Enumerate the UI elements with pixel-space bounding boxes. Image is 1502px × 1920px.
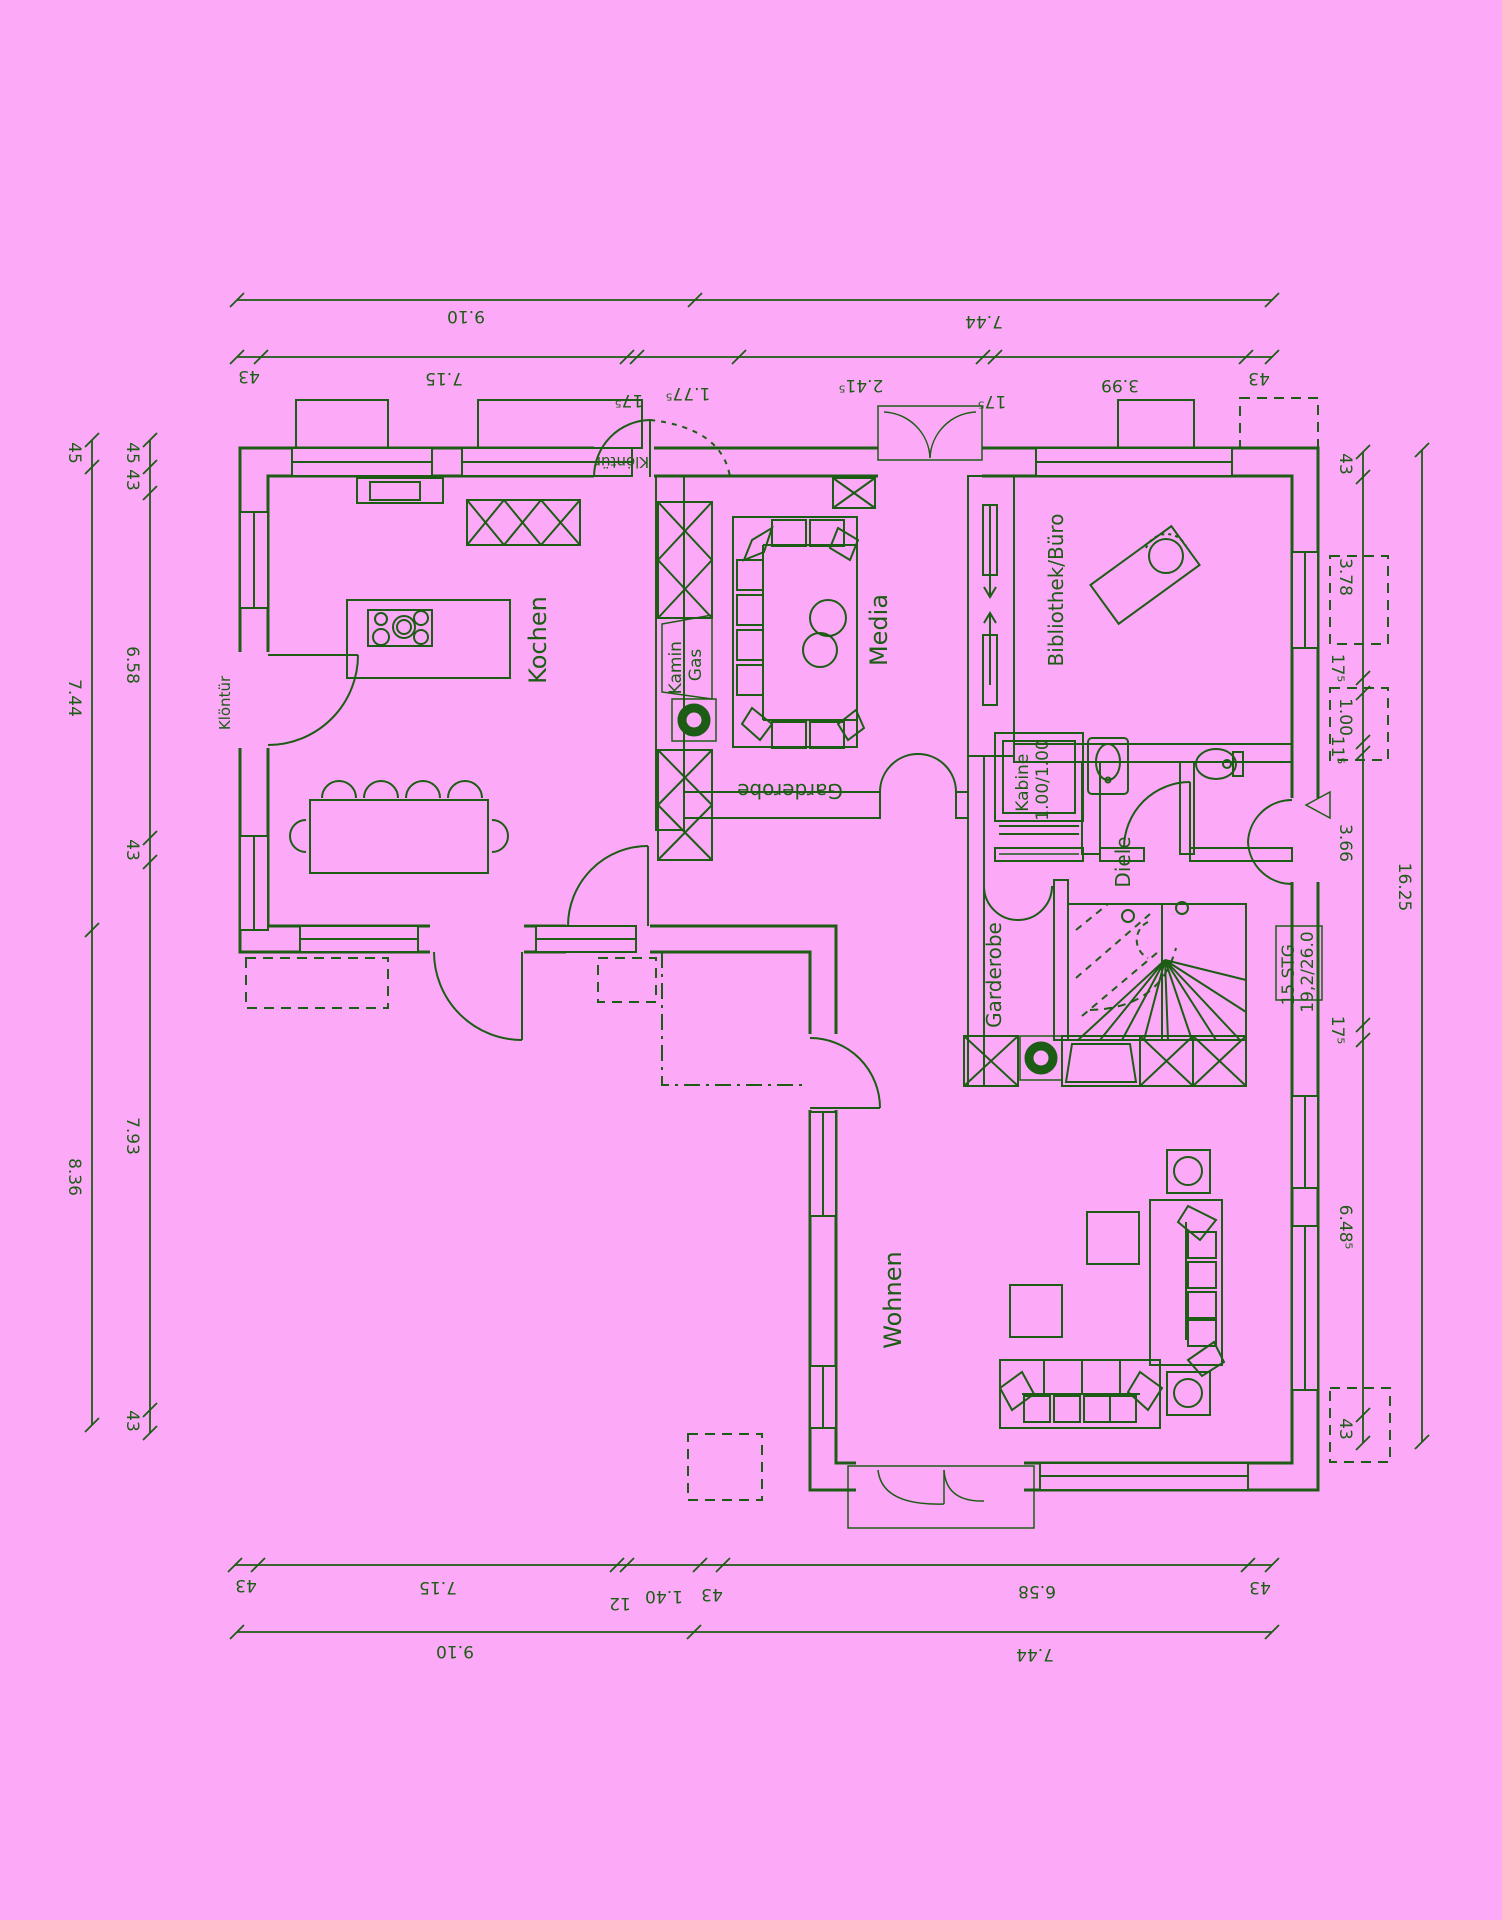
- svg-text:9.10: 9.10: [436, 1641, 474, 1661]
- kitchen-furniture: [290, 600, 510, 873]
- room-label-media: Media: [865, 594, 893, 666]
- svg-text:17⁵: 17⁵: [978, 391, 1006, 411]
- svg-text:17⁵: 17⁵: [615, 390, 643, 410]
- svg-text:43: 43: [1248, 368, 1270, 388]
- svg-text:43: 43: [1335, 1418, 1355, 1440]
- svg-text:8.36: 8.36: [64, 1158, 84, 1196]
- staircase: [1068, 902, 1246, 1040]
- svg-text:7.93: 7.93: [122, 1117, 142, 1155]
- label-kloentuer-top: Klöntür: [594, 453, 649, 471]
- svg-text:3.66: 3.66: [1335, 824, 1355, 862]
- svg-text:12: 12: [609, 1593, 631, 1613]
- fireplace-icon: [1029, 1046, 1053, 1070]
- floor-plan-drawing: 15 STG 19,2/26.0: [0, 0, 1502, 1920]
- room-label-kochen: Kochen: [524, 596, 552, 684]
- svg-text:45: 45: [122, 442, 142, 464]
- label-kabine: Kabine 1.00/1.00: [1013, 739, 1053, 820]
- svg-text:17⁵: 17⁵: [1327, 1016, 1347, 1044]
- room-label-diele: Diele: [1111, 836, 1135, 887]
- wohnen-furniture: [1000, 1150, 1224, 1428]
- svg-text:3.99: 3.99: [1101, 375, 1139, 395]
- svg-text:45: 45: [64, 442, 84, 464]
- svg-text:6.58: 6.58: [1018, 1581, 1056, 1601]
- room-label-bibliothek: Bibliothek/Büro: [1044, 514, 1068, 667]
- room-label-garderobe-media: Garderobe: [737, 779, 843, 803]
- room-label-garderobe-diele: Garderobe: [982, 922, 1006, 1028]
- svg-text:3.78: 3.78: [1335, 558, 1355, 596]
- svg-text:7.15: 7.15: [425, 368, 463, 388]
- svg-text:1.00: 1.00: [1335, 698, 1355, 736]
- svg-text:7.44: 7.44: [965, 311, 1003, 331]
- svg-text:7.15: 7.15: [419, 1577, 457, 1597]
- doors: [268, 420, 1292, 1108]
- media-furniture: [733, 517, 864, 748]
- label-kloentuer-left: Klöntür: [216, 675, 234, 730]
- svg-text:17⁵: 17⁵: [1327, 654, 1347, 682]
- svg-text:16.25: 16.25: [1394, 863, 1414, 912]
- stairs-spec-label: 15 STG 19,2/26.0: [1276, 926, 1322, 1013]
- svg-text:43: 43: [1249, 1577, 1271, 1597]
- svg-text:2.41⁵: 2.41⁵: [839, 375, 884, 395]
- fireplace-wohnen: [1020, 1036, 1062, 1080]
- label-kamin-gas: Kamin Gas: [666, 636, 706, 695]
- svg-text:7.44: 7.44: [64, 679, 84, 717]
- svg-text:43: 43: [238, 366, 260, 386]
- svg-text:15 STG 19,2/26.0: 15 STG 19,2/26.0: [1279, 931, 1318, 1012]
- svg-text:43: 43: [122, 469, 142, 491]
- svg-text:43: 43: [235, 1575, 257, 1595]
- chimney-icon: [682, 708, 706, 732]
- svg-text:11⁵: 11⁵: [1327, 736, 1347, 764]
- svg-text:7.44: 7.44: [1016, 1644, 1054, 1664]
- svg-text:6.48⁵: 6.48⁵: [1335, 1205, 1355, 1250]
- svg-text:43: 43: [1335, 453, 1355, 475]
- svg-text:1.40: 1.40: [645, 1586, 683, 1606]
- svg-text:9.10: 9.10: [447, 306, 485, 326]
- room-labels: Kochen Media Bibliothek/Büro Diele Wohne…: [216, 453, 1135, 1349]
- svg-text:43: 43: [122, 1410, 142, 1432]
- svg-text:6.58: 6.58: [122, 646, 142, 684]
- svg-text:1.77⁵: 1.77⁵: [666, 383, 711, 403]
- svg-text:43: 43: [122, 839, 142, 861]
- bibliothek-furniture: [1090, 526, 1199, 624]
- room-label-wohnen: Wohnen: [879, 1251, 907, 1348]
- svg-text:43: 43: [701, 1584, 723, 1604]
- sliding-doors: [983, 505, 997, 705]
- floor-plan-page: 15 STG 19,2/26.0: [0, 0, 1502, 1920]
